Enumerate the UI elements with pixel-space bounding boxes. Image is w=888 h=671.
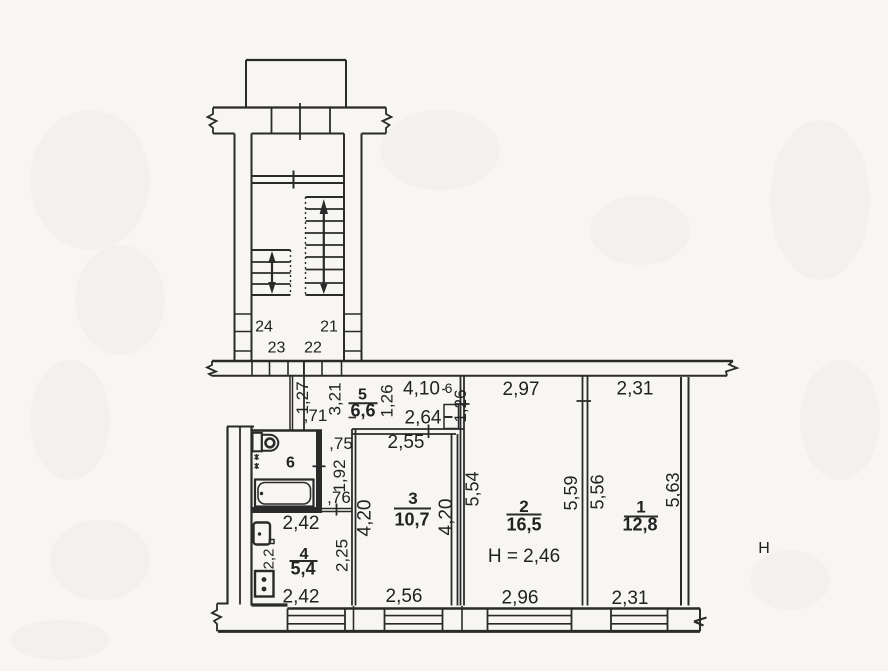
svg-text:2,56: 2,56 (386, 586, 423, 607)
svg-text:5,54: 5,54 (463, 471, 483, 506)
svg-text:22: 22 (304, 340, 322, 357)
svg-text:2,97: 2,97 (503, 379, 540, 400)
svg-text:12,8: 12,8 (622, 515, 657, 535)
svg-text:24: 24 (255, 319, 273, 336)
svg-text:2,55: 2,55 (388, 432, 425, 453)
svg-text:2,42: 2,42 (283, 587, 320, 608)
svg-text:2,31: 2,31 (612, 588, 649, 609)
svg-text:3: 3 (408, 489, 417, 508)
svg-text:2,64: 2,64 (405, 408, 442, 429)
svg-text:4,10: 4,10 (403, 379, 440, 400)
svg-text:Н = 2,46: Н = 2,46 (488, 546, 560, 567)
svg-text:4,20: 4,20 (436, 499, 457, 536)
svg-text:2,2: 2,2 (260, 549, 277, 570)
svg-text:16,5: 16,5 (506, 515, 541, 535)
svg-text:1,26: 1,26 (378, 384, 397, 417)
svg-text:1,92: 1,92 (330, 459, 349, 492)
svg-text:1,26: 1,26 (451, 389, 470, 422)
svg-text:2: 2 (519, 497, 528, 516)
svg-text:2,25: 2,25 (333, 539, 352, 572)
svg-text:Н: Н (758, 540, 770, 557)
svg-text:1,27: 1,27 (293, 381, 312, 414)
svg-text:2,31: 2,31 (617, 379, 654, 400)
svg-text:4,20: 4,20 (354, 500, 375, 537)
svg-text:23: 23 (268, 340, 286, 357)
svg-text:5,59: 5,59 (561, 475, 581, 510)
svg-text:6: 6 (286, 455, 295, 472)
svg-text:5,63: 5,63 (663, 472, 683, 507)
svg-text:2,96: 2,96 (502, 588, 539, 609)
svg-text:21: 21 (320, 319, 338, 336)
svg-text:2,42: 2,42 (283, 513, 320, 534)
svg-text:,75: ,75 (329, 434, 353, 453)
svg-text:5,56: 5,56 (588, 474, 608, 509)
svg-text:3,21: 3,21 (326, 382, 345, 415)
svg-text:5,4: 5,4 (290, 559, 315, 579)
svg-text:10,7: 10,7 (394, 510, 429, 530)
